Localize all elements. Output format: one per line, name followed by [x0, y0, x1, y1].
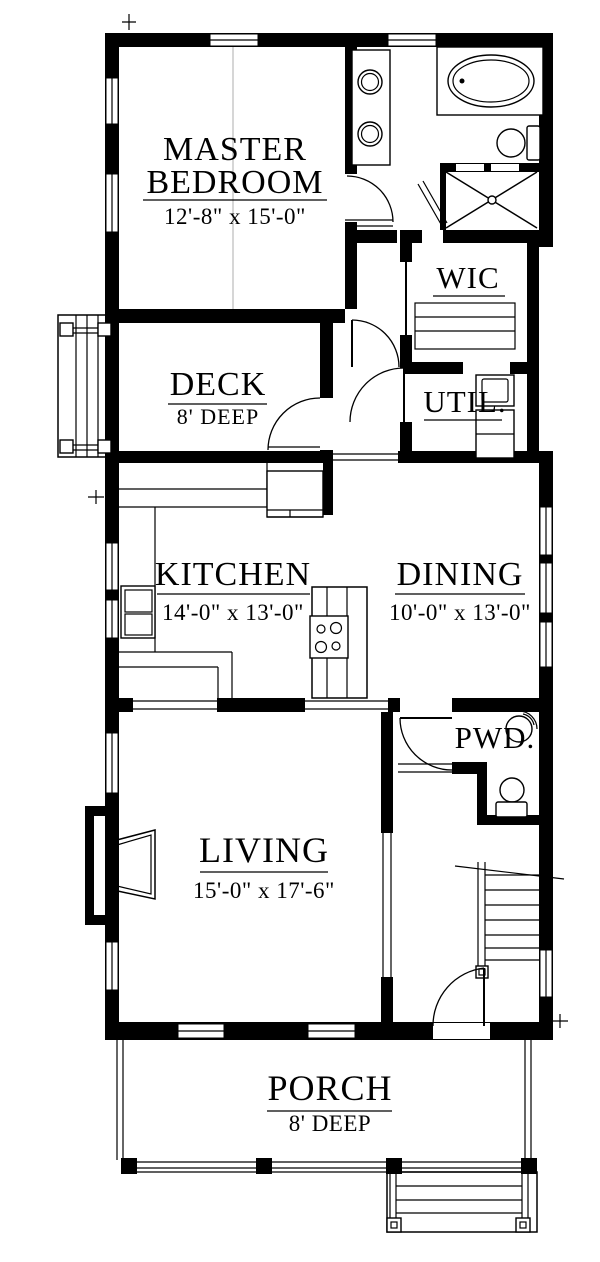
kitchen-island — [310, 587, 367, 698]
toilet-tank — [527, 126, 540, 160]
toilet-tank — [496, 802, 527, 817]
shower — [418, 172, 537, 228]
util-label: UTIL. — [423, 384, 506, 419]
fireplace — [85, 806, 155, 925]
newel-post — [387, 1218, 401, 1232]
window — [540, 622, 552, 667]
deck-label: DECK — [170, 366, 267, 403]
window — [106, 174, 118, 232]
front-door-gap — [433, 1023, 490, 1039]
porch-depth: 8' DEEP — [289, 1111, 371, 1136]
newel-post — [98, 323, 111, 336]
dining-dims: 10'-0" x 13'-0" — [389, 600, 531, 625]
vanity — [352, 50, 390, 165]
window — [106, 78, 118, 124]
newel-post — [98, 440, 111, 453]
floor-plan: MASTER BEDROOM 12'-8" x 15'-0" WIC DECK … — [0, 0, 600, 1262]
master-bedroom-dims: 12'-8" x 15'-0" — [164, 204, 306, 229]
dining-label: DINING — [397, 556, 524, 593]
wic-shelving — [415, 303, 515, 349]
porch-column — [121, 1158, 137, 1174]
window — [106, 733, 118, 793]
porch-column — [256, 1158, 272, 1174]
newel-post — [60, 323, 73, 336]
pwd-door — [400, 718, 452, 770]
living-dims: 15'-0" x 17'-6" — [193, 878, 335, 903]
window — [540, 950, 552, 997]
bath-door — [345, 176, 393, 226]
window — [106, 942, 118, 990]
deck-depth: 8' DEEP — [177, 404, 259, 429]
window — [178, 1024, 224, 1038]
living-label: LIVING — [199, 830, 329, 870]
window — [388, 34, 436, 46]
window — [308, 1024, 355, 1038]
shower-glass — [456, 164, 484, 171]
kitchen-dims: 14'-0" x 13'-0" — [162, 600, 304, 625]
floor-plan-drawing: MASTER BEDROOM 12'-8" x 15'-0" WIC DECK … — [0, 0, 600, 1262]
shower-glass — [491, 164, 519, 171]
toilet-bowl — [497, 129, 525, 157]
hall-door — [352, 320, 399, 367]
cooktop — [310, 616, 348, 658]
toilet-bowl — [500, 778, 524, 802]
window — [210, 34, 258, 46]
master-bath — [352, 47, 543, 228]
master-bedroom-label: BEDROOM — [146, 164, 323, 201]
newel-post — [516, 1218, 530, 1232]
window — [106, 600, 118, 638]
deck-door — [268, 398, 320, 453]
porch-steps — [387, 1172, 537, 1232]
window — [540, 507, 552, 555]
window — [540, 563, 552, 613]
newel-post — [60, 440, 73, 453]
util-door — [350, 368, 404, 422]
pwd-label: PWD. — [455, 720, 536, 755]
window — [106, 543, 118, 590]
tub-drain — [460, 79, 465, 84]
master-bedroom-label: MASTER — [163, 131, 307, 168]
wic-label: WIC — [436, 260, 499, 295]
porch-label: PORCH — [267, 1068, 392, 1108]
kitchen-label: KITCHEN — [155, 556, 311, 593]
